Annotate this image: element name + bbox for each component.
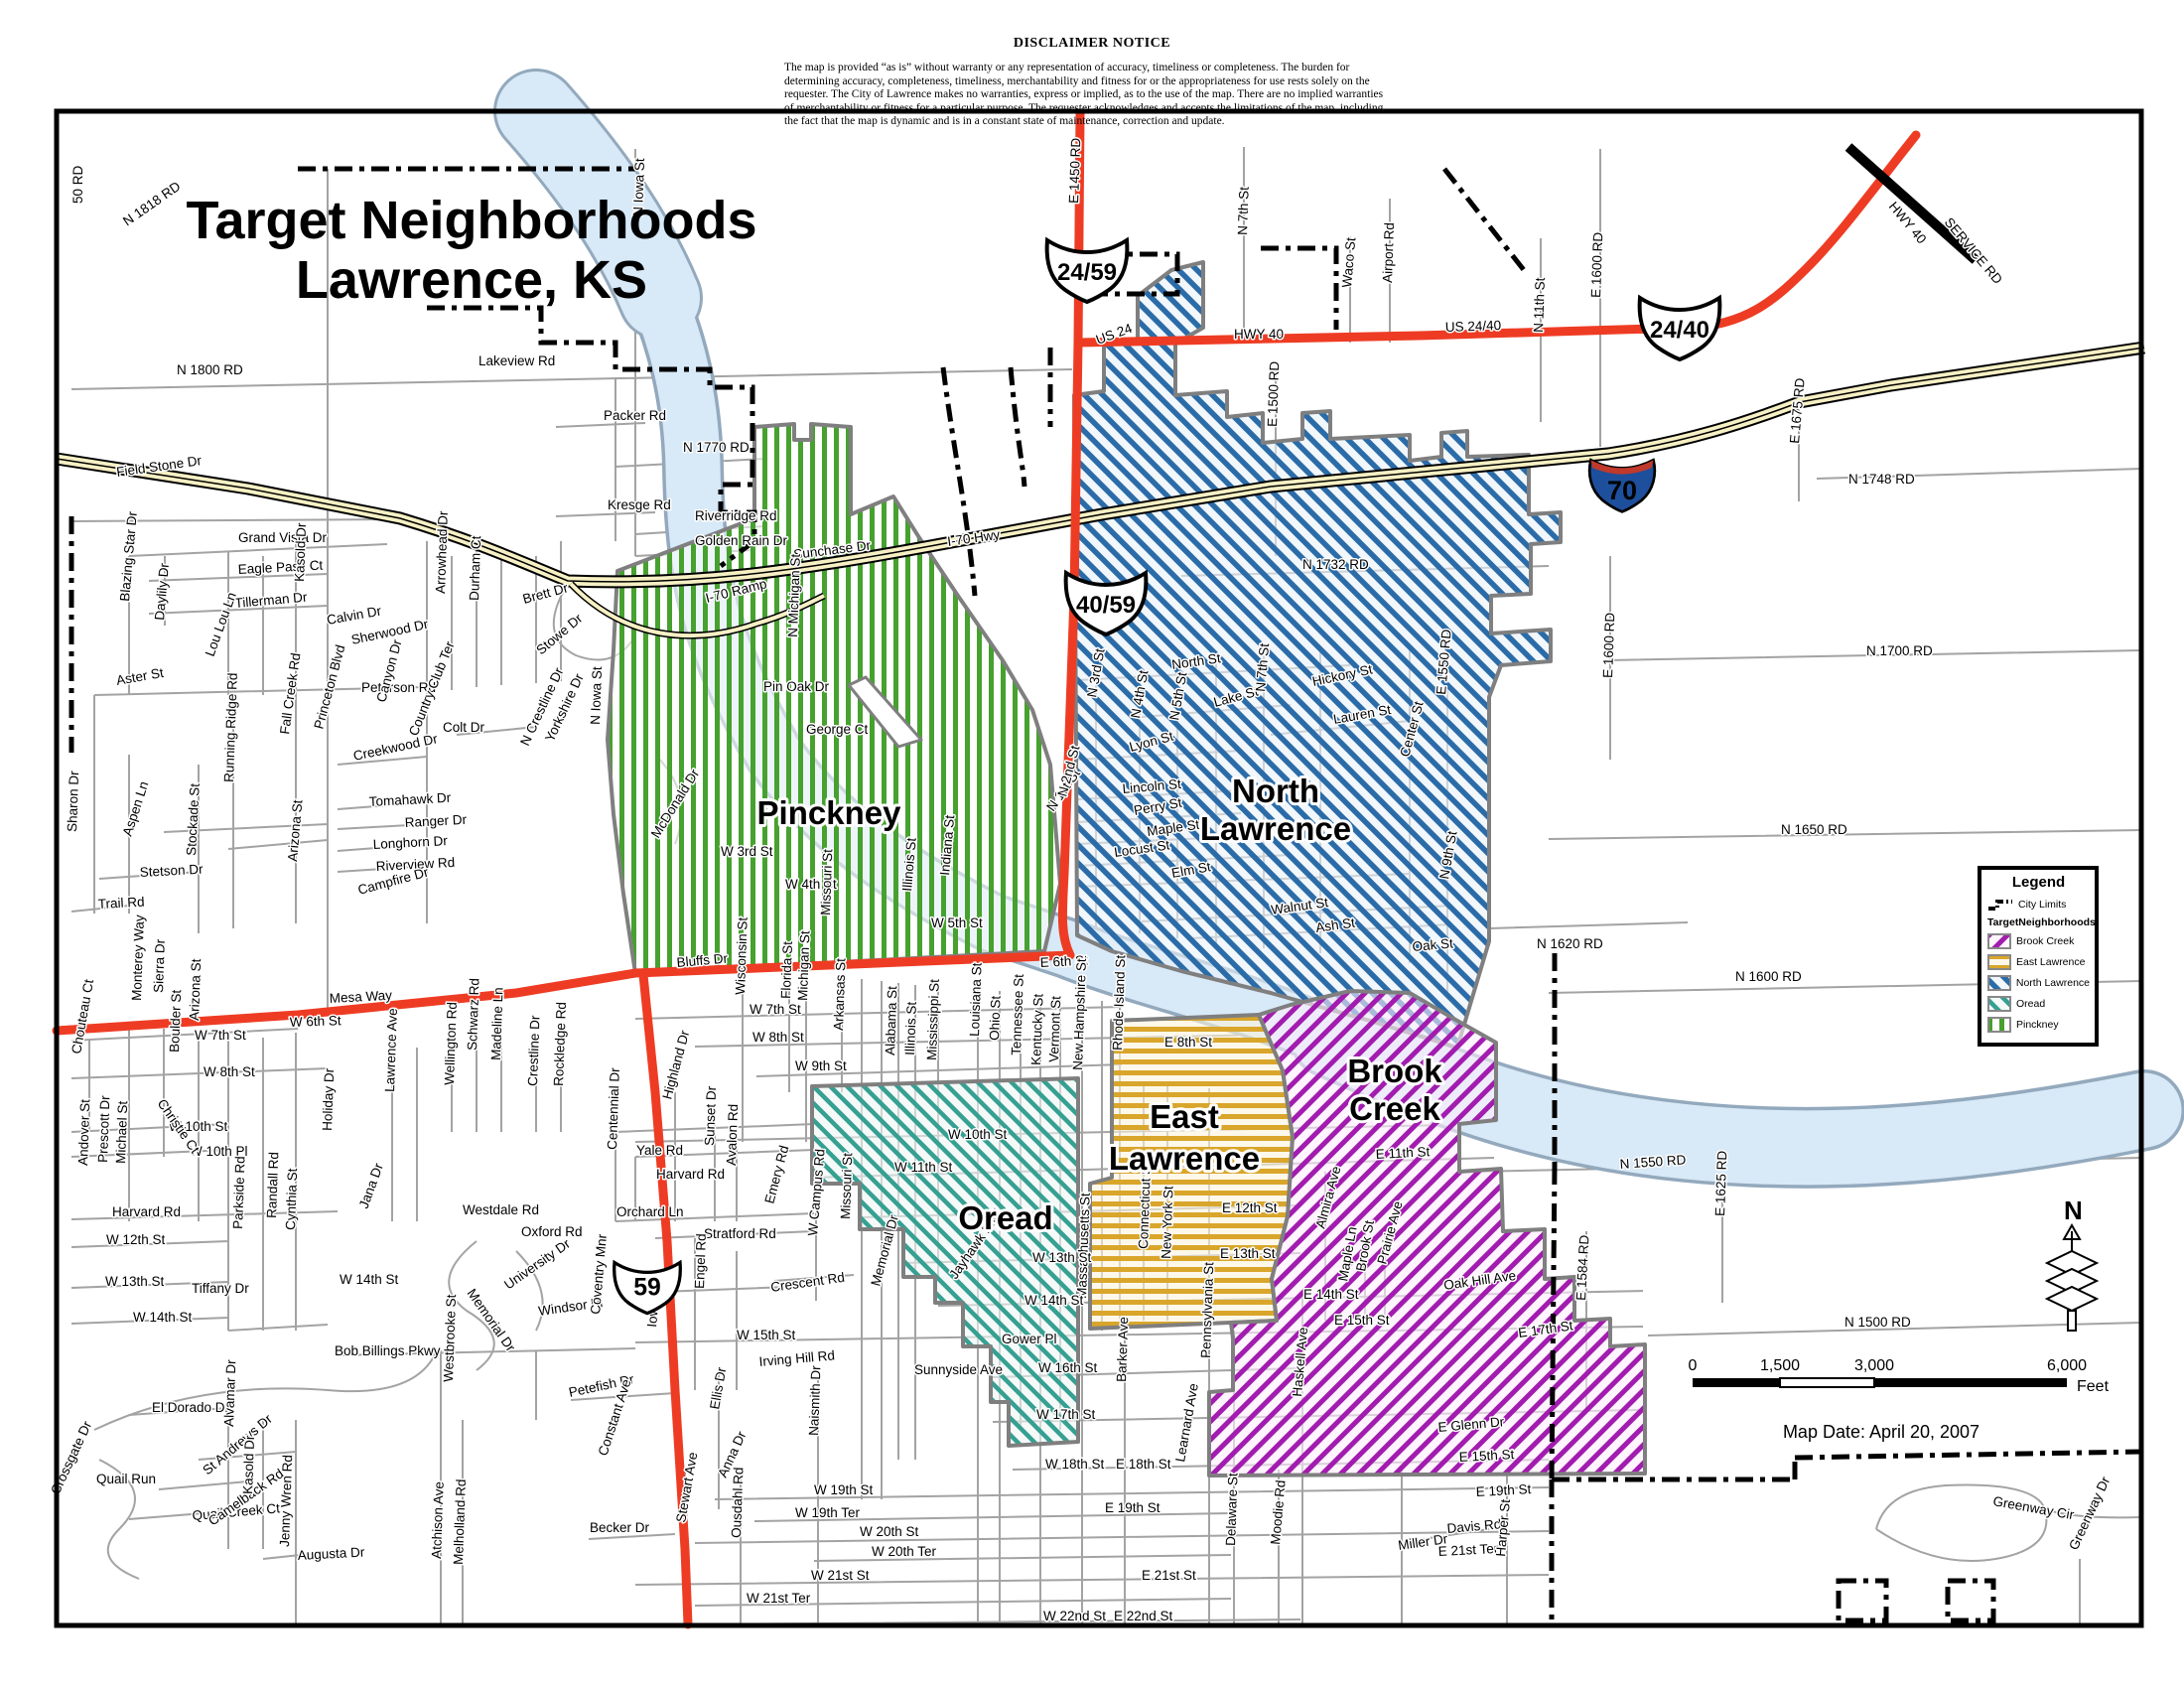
street-label: Riverridge Rd	[695, 508, 777, 523]
street-label: E 1625 RD	[1712, 1150, 1729, 1216]
street-label: Sunnyside Ave	[914, 1362, 1003, 1377]
street-label: E 22nd St	[1114, 1609, 1173, 1623]
street-label: E 1600 RD	[1600, 612, 1617, 678]
street-label: Andover St	[75, 1099, 92, 1167]
street-label: Crestline Dr	[525, 1015, 542, 1086]
street-label: Missouri St	[818, 849, 835, 915]
legend-item-label: Oread	[2016, 998, 2045, 1010]
street-label: Sharon Dr	[65, 771, 81, 833]
legend-city-limits-label: City Limits	[2018, 899, 2066, 911]
street-label: Centennial Dr	[605, 1067, 622, 1151]
legend-items: Brook CreekEast LawrenceNorth LawrenceOr…	[1987, 933, 2090, 1033]
map-date: Map Date: April 20, 2007	[1783, 1422, 1979, 1442]
street-label: Boulder St	[167, 989, 184, 1053]
street-label: W 3rd St	[721, 844, 773, 859]
street-label: Kentucky St	[1028, 993, 1046, 1065]
legend-item-label: Brook Creek	[2016, 935, 2074, 947]
street-label: Louisiana St	[967, 962, 985, 1037]
street-label: E 15th St	[1458, 1447, 1514, 1465]
street-label: Avalon Rd	[724, 1104, 741, 1167]
street-label: W 9th St	[795, 1058, 847, 1073]
disclaimer-line: determining accuracy, completeness, time…	[784, 75, 1400, 89]
street-label: W 16th St	[1038, 1360, 1098, 1375]
street-label: Randall Rd	[264, 1152, 281, 1218]
street-label: Harvard Rd	[656, 1167, 725, 1182]
legend-swatch	[1987, 954, 2011, 970]
neighborhood-label: North	[1232, 773, 1319, 809]
disclaimer-line: of merchantability or fitness for a part…	[784, 102, 1400, 116]
street-label: HWY 40	[1234, 327, 1284, 342]
street-label: W 10th St	[948, 1127, 1008, 1142]
street-label: E 1500 RD	[1265, 360, 1282, 427]
map-title-line2: Lawrence, KS	[296, 250, 647, 310]
street-label: W 6th St	[290, 1013, 342, 1030]
north-arrow-label: N	[2064, 1196, 2083, 1225]
scale-tick-label: 1,500	[1760, 1357, 1800, 1374]
legend-item: Brook Creek	[1987, 933, 2090, 949]
neighborhood-label: Lawrence	[1200, 810, 1351, 847]
street-label: Gower Pl	[1002, 1332, 1057, 1346]
street-label: Alvamar Dr	[221, 1359, 238, 1427]
disclaimer-title: DISCLAIMER NOTICE	[784, 36, 1400, 52]
street-label: Ousdahl Rd	[729, 1467, 746, 1538]
street-label: Kresge Rd	[608, 497, 671, 512]
street-label: Quail Run	[96, 1472, 156, 1486]
street-label: Lawrence Ave	[382, 1008, 400, 1092]
street-label: Tennessee St	[1009, 974, 1026, 1056]
map-title-line1: Target Neighborhoods	[187, 191, 757, 250]
street-label: Schwarz Rd	[465, 978, 482, 1051]
street-label: US 24/40	[1445, 318, 1502, 335]
map-page: 50 RDN 1818 RDN 1800 RDLakeview RdPacker…	[0, 0, 2184, 1688]
legend-swatch	[1987, 1017, 2011, 1033]
street-label: Oxford Rd	[521, 1224, 583, 1239]
street-label: Arizona St	[187, 958, 204, 1021]
neighborhood-label: Creek	[1349, 1090, 1440, 1127]
street-label: W 22nd St	[1043, 1609, 1106, 1623]
street-label: N Iowa St	[588, 666, 605, 725]
street-label: Sierra Dr	[151, 938, 168, 993]
street-label: Missouri St	[838, 1153, 855, 1219]
street-label: Pin Oak Dr	[763, 679, 830, 694]
street-label: Tiffany Dr	[192, 1281, 249, 1296]
street-label: W 15th St	[737, 1328, 796, 1342]
legend-swatch	[1987, 933, 2011, 949]
svg-text:70: 70	[1607, 476, 1637, 505]
city-limits-symbol	[1987, 899, 2013, 911]
scale-tick-label: 3,000	[1854, 1357, 1894, 1374]
street-label: Orchard Ln	[616, 1204, 684, 1219]
street-label: Trail Rd	[97, 895, 144, 912]
street-label: N 1620 RD	[1537, 936, 1603, 951]
neighborhood-label: Lawrence	[1109, 1140, 1260, 1177]
street-label: E 13th St	[1220, 1246, 1276, 1261]
neighborhood-label: East	[1150, 1098, 1219, 1135]
street-label: Mississippi St	[924, 979, 942, 1060]
legend-item: Oread	[1987, 996, 2090, 1012]
street-label: W 17th St	[1036, 1407, 1096, 1422]
disclaimer-notice: DISCLAIMER NOTICE The map is provided “a…	[784, 36, 1400, 129]
street-label: W 7th St	[750, 1002, 801, 1017]
street-label: Westdale Rd	[463, 1202, 539, 1217]
street-label: W 21st St	[811, 1568, 870, 1583]
svg-text:40/59: 40/59	[1076, 592, 1136, 619]
street-label: W 21st Ter	[747, 1591, 811, 1606]
street-label: Bob Billings Pkwy	[335, 1343, 441, 1358]
svg-text:24/40: 24/40	[1650, 317, 1709, 344]
street-label: W 19th St	[814, 1482, 874, 1497]
street-label: W 8th St	[752, 1030, 804, 1045]
street-label: Lakeview Rd	[478, 353, 555, 368]
street-label: W 5th St	[931, 915, 983, 930]
street-label: N 1700 RD	[1866, 643, 1933, 658]
street-label: W 18th St	[1045, 1457, 1105, 1472]
street-label: Stratford Rd	[704, 1226, 776, 1241]
street-label: Engel Rd	[692, 1233, 709, 1289]
legend-item: North Lawrence	[1987, 975, 2090, 991]
street-label: Durham Ct	[467, 535, 483, 601]
legend-title: Legend	[1987, 874, 2090, 891]
street-label: N 1770 RD	[683, 440, 750, 455]
street-label: E 14th St	[1303, 1287, 1359, 1302]
street-label: E 8th St	[1164, 1035, 1212, 1050]
legend-item: East Lawrence	[1987, 954, 2090, 970]
street-label: E 12th St	[1222, 1200, 1278, 1215]
street-label: W 11th St	[894, 1160, 953, 1175]
street-label: W 19th Ter	[795, 1505, 861, 1520]
legend-city-limits: City Limits	[1987, 899, 2090, 911]
neighborhood-label: Brook	[1347, 1053, 1442, 1089]
street-label: Illinois St	[902, 1001, 919, 1055]
street-label: Wisconsin St	[733, 916, 751, 995]
street-label: Florida St	[778, 941, 795, 1000]
street-label: Naismith Dr	[806, 1365, 823, 1436]
street-label: Sunset Dr	[702, 1085, 719, 1146]
legend-swatch	[1987, 996, 2011, 1012]
street-label: W 13th St	[1032, 1250, 1092, 1265]
street-label: W 13th St	[105, 1274, 165, 1289]
street-label: Michigan St	[795, 930, 812, 1001]
street-label: W 14th St	[133, 1310, 193, 1325]
svg-text:24/59: 24/59	[1057, 259, 1117, 286]
legend-item-label: Pinckney	[2016, 1019, 2059, 1031]
street-label: George Ct	[806, 722, 869, 737]
street-label: Melholland Rd	[451, 1478, 469, 1565]
disclaimer-line: The map is provided “as is” without warr…	[784, 62, 1400, 75]
street-label: Harvard Rd	[112, 1204, 181, 1219]
street-label: Yale Rd	[636, 1143, 683, 1158]
street-label: W 8th St	[204, 1064, 255, 1079]
street-label: N 7th St	[1235, 187, 1252, 236]
street-label: W 7th St	[195, 1028, 246, 1043]
street-label: E 21st St	[1142, 1568, 1196, 1583]
street-label: Alabama St	[883, 986, 899, 1056]
street-label: New York St	[1159, 1186, 1176, 1259]
street-label: Madeline Ln	[488, 987, 506, 1060]
street-label: Atchison Ave	[429, 1481, 447, 1559]
street-label: Becker Dr	[590, 1520, 650, 1535]
legend-group-label: TargetNeighborhoods	[1987, 916, 2090, 928]
street-label: E 1450 RD	[1066, 137, 1083, 204]
neighborhood-label: Oread	[958, 1199, 1052, 1236]
street-label: W 20th Ter	[872, 1544, 937, 1559]
svg-text:59: 59	[633, 1275, 661, 1302]
street-label: Arrowhead Dr	[433, 510, 451, 594]
disclaimer-line: requester. The City of Lawrence makes no…	[784, 88, 1400, 102]
street-label: Delaware St	[1223, 1473, 1241, 1546]
legend-item-label: East Lawrence	[2016, 956, 2085, 968]
street-label: N 1732 RD	[1302, 557, 1369, 572]
street-label: Holiday Dr	[320, 1067, 337, 1131]
street-label: Colt Dr	[443, 720, 485, 735]
street-label: N 1748 RD	[1848, 472, 1915, 487]
street-label: N 1650 RD	[1781, 822, 1847, 837]
street-label: E 1600 RD	[1588, 231, 1605, 298]
street-label: Packer Rd	[604, 408, 666, 423]
scale-tick-label: 6,000	[2047, 1357, 2087, 1374]
street-label: Grand Vista Dr	[238, 530, 328, 545]
street-label: Kasold Dr	[292, 522, 309, 582]
street-label: Arkansas St	[831, 958, 849, 1032]
street-label: Westbrooke St	[441, 1294, 459, 1382]
street-label: 50 RD	[70, 165, 85, 204]
street-label: W 14th St	[1024, 1293, 1084, 1308]
street-label: W 12th St	[106, 1232, 166, 1247]
street-label: Golden Rain Dr	[695, 533, 788, 548]
street-label: W 14th St	[340, 1272, 399, 1287]
street-label: W 20th St	[860, 1524, 919, 1539]
street-label: Cynthia St	[283, 1168, 300, 1230]
legend-swatch	[1987, 975, 2011, 991]
map-canvas: 50 RDN 1818 RDN 1800 RDLakeview RdPacker…	[0, 0, 2184, 1688]
street-label: E 19th St	[1105, 1500, 1160, 1515]
street-label: N 11th St	[1531, 277, 1548, 333]
street-label: E 15th St	[1334, 1313, 1390, 1328]
street-label: Vermont St	[1046, 996, 1063, 1063]
scale-unit: Feet	[2077, 1378, 2110, 1395]
street-label: E 11th St	[1375, 1144, 1430, 1162]
legend-item: Pinckney	[1987, 1017, 2090, 1033]
street-label: N Michigan St	[785, 553, 803, 637]
street-label: Airport Rd	[1380, 222, 1397, 283]
street-label: Prescott Dr	[95, 1095, 112, 1163]
street-label: E 18th St	[1116, 1457, 1171, 1472]
scale-tick-label: 0	[1689, 1357, 1698, 1374]
street-label: E 19th St	[1475, 1481, 1531, 1499]
street-label: N 1500 RD	[1844, 1315, 1911, 1330]
legend-item-label: North Lawrence	[2016, 977, 2090, 989]
neighborhood-label: Pinckney	[757, 794, 902, 831]
street-label: Michael St	[113, 1100, 130, 1164]
street-label: Kasold Dr	[240, 1435, 257, 1494]
street-label: Rockledge Rd	[551, 1002, 569, 1086]
legend: Legend City Limits TargetNeighborhoods B…	[1978, 866, 2099, 1047]
street-label: N 1600 RD	[1735, 969, 1802, 984]
street-label: Ohio St	[987, 995, 1004, 1041]
street-label: Barker Ave	[1114, 1317, 1131, 1382]
street-label: Parkside Rd	[230, 1156, 248, 1229]
street-label: El Dorado Dr	[152, 1400, 230, 1415]
street-label: N 1800 RD	[177, 362, 243, 377]
street-label: Wellington Rd	[442, 1002, 460, 1085]
street-label: Monterey Way	[129, 914, 147, 1001]
disclaimer-line: the fact that the map is dynamic and is …	[784, 115, 1400, 129]
